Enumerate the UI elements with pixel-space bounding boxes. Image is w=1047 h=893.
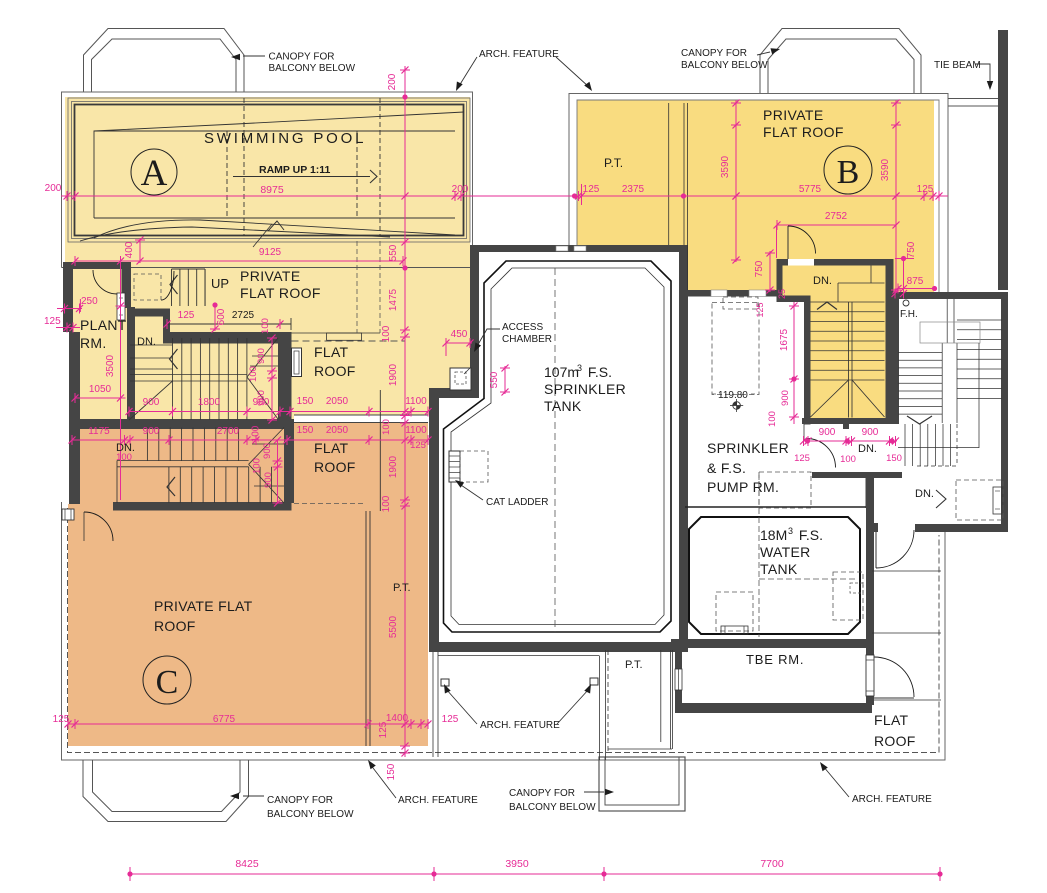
svg-text:100: 100 [381, 419, 392, 435]
svg-text:FLAT: FLAT [314, 344, 349, 360]
svg-text:SPRINKLER: SPRINKLER [707, 440, 789, 456]
svg-text:DN.: DN. [858, 443, 877, 455]
svg-text:100: 100 [248, 366, 259, 382]
svg-text:SPRINKLER: SPRINKLER [544, 381, 626, 397]
svg-text:550: 550 [489, 371, 500, 388]
svg-text:900: 900 [862, 427, 879, 438]
svg-text:ARCH. FEATURE: ARCH. FEATURE [479, 49, 559, 60]
svg-text:900: 900 [143, 426, 160, 437]
svg-text:ARCH. FEATURE: ARCH. FEATURE [398, 795, 478, 806]
svg-text:DN.: DN. [813, 275, 832, 287]
svg-text:107m: 107m [544, 364, 579, 380]
svg-text:3: 3 [577, 363, 582, 373]
svg-text:100: 100 [381, 325, 392, 342]
svg-text:TIE BEAM: TIE BEAM [934, 60, 981, 71]
svg-text:119.80: 119.80 [718, 390, 748, 401]
svg-text:875: 875 [907, 276, 924, 287]
svg-text:125: 125 [442, 714, 459, 725]
svg-text:150: 150 [386, 763, 397, 780]
svg-text:3500: 3500 [105, 354, 116, 377]
svg-text:1100: 1100 [405, 425, 427, 436]
svg-text:PLANT: PLANT [80, 317, 127, 333]
svg-text:125: 125 [44, 316, 61, 327]
svg-text:BALCONY BELOW: BALCONY BELOW [269, 63, 356, 74]
svg-text:3950: 3950 [505, 858, 529, 870]
svg-text:3590: 3590 [720, 155, 731, 178]
svg-text:1475: 1475 [388, 288, 399, 311]
svg-text:100: 100 [381, 495, 392, 512]
svg-text:B: B [837, 154, 860, 191]
svg-text:150: 150 [297, 396, 314, 407]
svg-text:DN.: DN. [116, 442, 135, 454]
svg-text:200: 200 [45, 183, 62, 194]
svg-text:ARCH. FEATURE: ARCH. FEATURE [480, 720, 560, 731]
svg-text:1050: 1050 [89, 384, 112, 395]
svg-text:& F.S.: & F.S. [707, 460, 746, 476]
svg-text:FLAT ROOF: FLAT ROOF [763, 124, 844, 140]
svg-text:125: 125 [410, 440, 426, 451]
svg-text:PRIVATE: PRIVATE [240, 268, 301, 284]
svg-text:TBE RM.: TBE RM. [746, 652, 804, 667]
svg-text:150: 150 [297, 425, 314, 436]
svg-text:9125: 9125 [259, 247, 282, 258]
svg-text:2375: 2375 [622, 184, 645, 195]
svg-text:125: 125 [53, 714, 70, 725]
svg-text:ROOF: ROOF [314, 363, 356, 379]
svg-text:UP: UP [211, 276, 229, 291]
svg-text:BALCONY BELOW: BALCONY BELOW [509, 802, 596, 813]
svg-text:3590: 3590 [880, 158, 891, 181]
svg-text:200: 200 [452, 184, 469, 195]
svg-text:5775: 5775 [799, 184, 822, 195]
svg-text:900: 900 [262, 443, 273, 459]
svg-text:900: 900 [143, 397, 160, 408]
svg-text:900: 900 [256, 348, 267, 364]
svg-text:100: 100 [251, 425, 262, 442]
svg-text:P.T.: P.T. [393, 582, 411, 594]
svg-text:CANOPY FOR: CANOPY FOR [267, 795, 333, 806]
svg-text:DN.: DN. [915, 488, 934, 500]
svg-text:TANK: TANK [760, 561, 798, 577]
svg-text:900: 900 [263, 472, 274, 488]
svg-text:ROOF: ROOF [874, 733, 916, 749]
svg-text:SWIMMING POOL: SWIMMING POOL [204, 130, 366, 147]
svg-text:PRIVATE: PRIVATE [763, 107, 824, 123]
svg-text:F.S.: F.S. [795, 527, 823, 543]
svg-text:PUMP RM.: PUMP RM. [707, 479, 779, 495]
svg-text:1400: 1400 [386, 713, 409, 724]
svg-text:150: 150 [886, 453, 902, 464]
svg-text:TANK: TANK [544, 398, 582, 414]
svg-text:ACCESS: ACCESS [502, 322, 543, 333]
svg-text:600: 600 [216, 308, 227, 325]
svg-text:2050: 2050 [326, 396, 349, 407]
svg-text:18M: 18M [760, 527, 787, 543]
svg-text:BALCONY BELOW: BALCONY BELOW [681, 60, 768, 71]
svg-text:25: 25 [777, 289, 787, 299]
svg-text:DN.: DN. [137, 336, 156, 348]
svg-text:BALCONY BELOW: BALCONY BELOW [267, 809, 354, 820]
svg-text:125: 125 [917, 184, 934, 195]
svg-text:1175: 1175 [88, 426, 110, 437]
svg-text:ROOF: ROOF [154, 618, 196, 634]
svg-text:CHAMBER: CHAMBER [502, 334, 552, 345]
svg-text:100: 100 [840, 454, 856, 465]
svg-text:ARCH. FEATURE: ARCH. FEATURE [852, 794, 932, 805]
svg-text:CANOPY FOR: CANOPY FOR [681, 48, 747, 59]
svg-text:FLAT: FLAT [874, 712, 909, 728]
svg-text:2725: 2725 [232, 310, 255, 321]
svg-text:2752: 2752 [825, 211, 848, 222]
svg-text:2050: 2050 [326, 425, 349, 436]
svg-text:900: 900 [819, 427, 836, 438]
svg-text:P.T.: P.T. [604, 156, 623, 170]
svg-text:1900: 1900 [388, 363, 399, 386]
svg-text:200: 200 [387, 73, 398, 90]
svg-text:FLAT: FLAT [314, 440, 349, 456]
svg-text:100: 100 [260, 318, 271, 334]
svg-text:PRIVATE FLAT: PRIVATE FLAT [154, 598, 253, 614]
svg-text:6775: 6775 [213, 714, 236, 725]
svg-text:5500: 5500 [388, 615, 399, 638]
svg-text:F.H.: F.H. [900, 309, 918, 320]
svg-text:100: 100 [252, 458, 263, 474]
svg-text:125: 125 [583, 184, 600, 195]
svg-text:7700: 7700 [760, 858, 784, 870]
svg-text:100: 100 [767, 411, 778, 427]
svg-text:8975: 8975 [260, 184, 284, 196]
svg-text:125: 125 [794, 453, 810, 464]
svg-text:750: 750 [906, 241, 917, 258]
svg-text:2700: 2700 [217, 426, 240, 437]
svg-text:450: 450 [451, 329, 468, 340]
svg-text:C: C [156, 664, 179, 701]
svg-text:550: 550 [388, 244, 399, 261]
svg-text:750: 750 [754, 260, 765, 277]
svg-text:1800: 1800 [198, 397, 221, 408]
svg-text:1900: 1900 [388, 455, 399, 478]
svg-text:F.S.: F.S. [584, 364, 612, 380]
svg-text:CANOPY FOR: CANOPY FOR [269, 52, 335, 63]
svg-text:1675: 1675 [779, 328, 790, 351]
svg-text:900: 900 [780, 390, 791, 406]
svg-text:1100: 1100 [405, 396, 427, 407]
svg-text:250: 250 [81, 296, 98, 307]
svg-text:400: 400 [124, 241, 135, 258]
svg-text:RAMP UP 1:11: RAMP UP 1:11 [259, 164, 331, 176]
svg-text:125: 125 [178, 310, 195, 321]
svg-text:8425: 8425 [235, 858, 259, 870]
svg-text:RM.: RM. [80, 335, 107, 351]
svg-text:P.T.: P.T. [625, 659, 643, 671]
svg-text:3: 3 [788, 526, 793, 536]
svg-text:A: A [141, 153, 168, 194]
svg-text:900: 900 [256, 390, 267, 406]
svg-text:FLAT ROOF: FLAT ROOF [240, 285, 321, 301]
svg-text:125: 125 [755, 302, 765, 317]
svg-text:CAT LADDER: CAT LADDER [486, 497, 548, 508]
svg-text:ROOF: ROOF [314, 459, 356, 475]
svg-text:WATER: WATER [760, 544, 811, 560]
svg-text:CANOPY FOR: CANOPY FOR [509, 788, 575, 799]
